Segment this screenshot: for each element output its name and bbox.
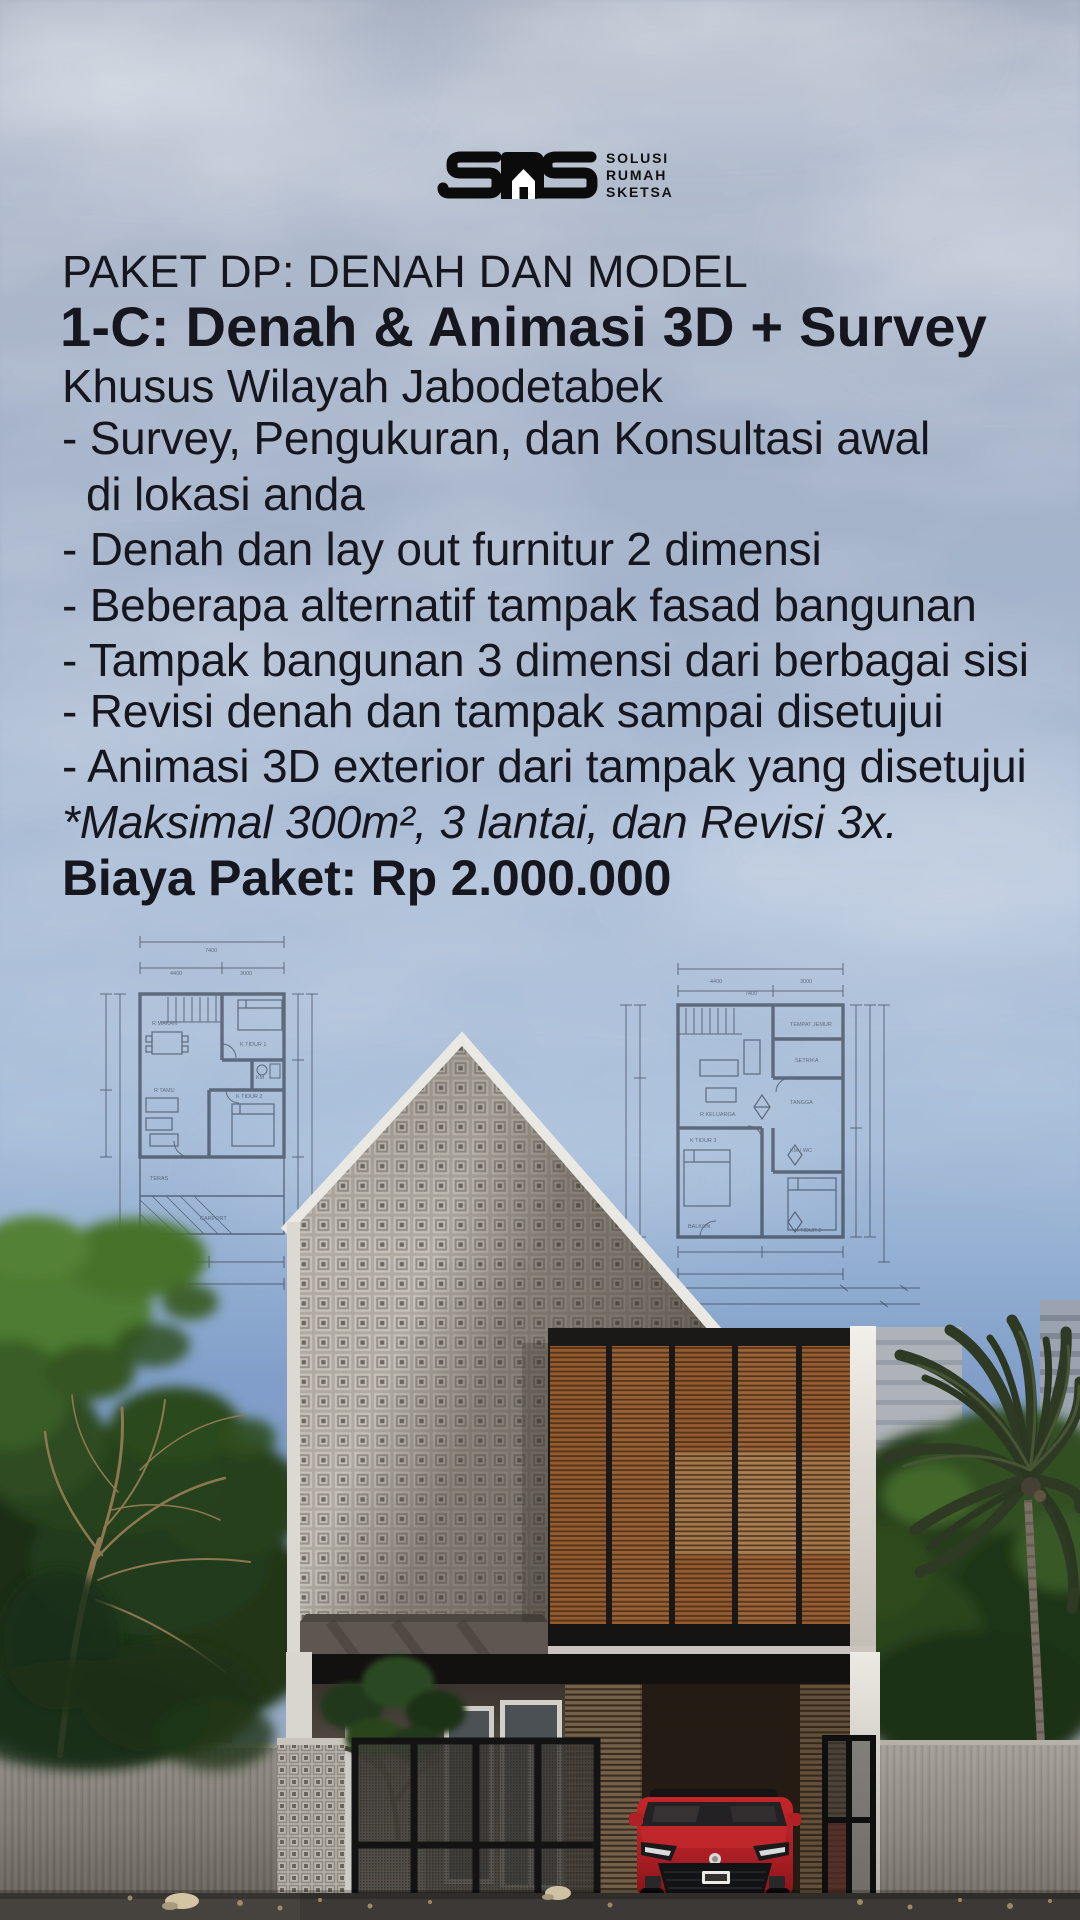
svg-text:4400: 4400: [710, 979, 722, 985]
svg-text:TEMPAT JEMUR: TEMPAT JEMUR: [790, 1022, 832, 1028]
svg-text:KM / WC: KM / WC: [790, 1148, 812, 1154]
svg-text:K TIDUR 2: K TIDUR 2: [236, 1094, 263, 1100]
svg-text:7400: 7400: [745, 991, 757, 997]
svg-text:R KELUARGA: R KELUARGA: [700, 1112, 736, 1118]
svg-text:CARPORT: CARPORT: [200, 1216, 227, 1222]
svg-text:K TIDUR 1: K TIDUR 1: [240, 1042, 267, 1048]
svg-text:3000: 3000: [240, 971, 252, 977]
svg-text:R TAMU: R TAMU: [154, 1088, 175, 1094]
svg-text:3000: 3000: [800, 979, 812, 985]
svg-text:4400: 4400: [170, 971, 182, 977]
svg-text:7400: 7400: [205, 948, 217, 954]
svg-text:K TIDUR 3: K TIDUR 3: [690, 1138, 717, 1144]
svg-text:BALKON: BALKON: [688, 1224, 710, 1230]
svg-text:TANGGA: TANGGA: [790, 1100, 813, 1106]
svg-text:K TIDUR 2: K TIDUR 2: [795, 1228, 822, 1234]
svg-text:R MAKAN: R MAKAN: [152, 1021, 177, 1027]
svg-text:TERAS: TERAS: [150, 1176, 169, 1182]
svg-text:KM: KM: [256, 1075, 265, 1081]
svg-text:SETRIKA: SETRIKA: [795, 1058, 819, 1064]
